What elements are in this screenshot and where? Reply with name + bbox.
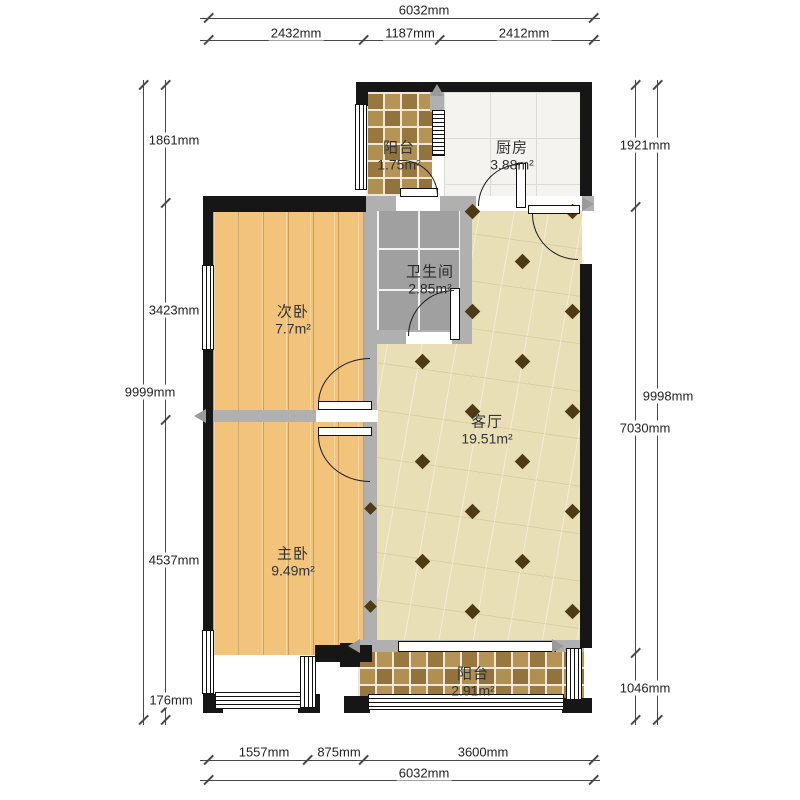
dim-left-seg-1: 1861mm [147, 133, 202, 148]
sliding-door-balcony-bottom [398, 641, 556, 652]
doorway-bedrooms [316, 410, 378, 422]
window-balcony-kitchen-divider [432, 110, 445, 156]
room-name: 客厅 [461, 413, 512, 430]
label-balcony-bottom: 阳台 2.91m² [451, 665, 495, 698]
window-balcony-top-west [355, 104, 367, 190]
dim-left-seg-2: 3423mm [147, 303, 202, 318]
dim-left-seg-4: 176mm [147, 693, 194, 708]
window-balcony-bottom-east [566, 648, 582, 700]
room-area: 7.7m² [275, 321, 311, 337]
dim-right-seg-2: 7030mm [618, 421, 673, 436]
arrow-right-balcony-icon [552, 639, 564, 653]
door-leaf-entrance [528, 205, 580, 214]
window-master-west [202, 630, 214, 694]
dim-right-total: 9998mm [641, 389, 696, 404]
window-bay-east [300, 656, 316, 708]
label-living: 客厅 19.51m² [461, 413, 512, 446]
dim-top-seg-1: 2432mm [269, 26, 324, 41]
dim-line-top-total [200, 18, 600, 19]
arrow-up-icon [430, 84, 444, 96]
window-bay-south [215, 692, 301, 709]
label-kitchen: 厨房 3.88m² [490, 139, 534, 172]
dim-line-right-segments [635, 80, 636, 725]
wall-west-main [203, 350, 213, 632]
dim-top-seg-2: 1187mm [383, 26, 437, 41]
label-balcony-top: 阳台 1.75m² [377, 139, 421, 172]
wall-west-upper [203, 212, 213, 265]
door-leaf-bedroom-master [318, 427, 372, 436]
dim-right-seg-1: 1921mm [618, 138, 673, 153]
dim-left-total: 9999mm [123, 385, 178, 400]
dim-bottom-seg-1: 1557mm [237, 745, 292, 760]
dim-bottom-seg-3: 3600mm [456, 745, 511, 760]
wall-north [356, 82, 592, 92]
label-bedroom-second: 次卧 7.7m² [275, 303, 311, 336]
room-name: 阳台 [377, 139, 421, 156]
wall-balcony-bottom-right-corner [562, 698, 592, 713]
dim-bottom-seg-2: 875mm [315, 745, 362, 760]
window-bedroom-second-west [202, 265, 214, 350]
room-area: 1.75m² [377, 157, 421, 173]
room-area: 2.91m² [451, 683, 495, 699]
room-area: 9.49m² [271, 563, 315, 579]
wall-bedroom-second-north [203, 196, 366, 212]
room-name: 厨房 [490, 139, 534, 156]
arrow-left-icon [194, 409, 206, 423]
dim-line-left-total [143, 80, 144, 725]
wall-bathroom-right [460, 207, 472, 344]
label-bathroom: 卫生间 2.85m² [406, 263, 454, 296]
dim-left-seg-3: 4537mm [147, 553, 202, 568]
dim-top-seg-3: 2412mm [497, 26, 552, 41]
room-name: 主卧 [271, 545, 315, 562]
wall-balcony-bottom-left-corner [344, 696, 370, 713]
room-area: 19.51m² [461, 431, 512, 447]
wall-balcony-top-west [356, 82, 368, 106]
doorway-balcony-top [396, 196, 440, 211]
dim-line-bottom-segments [200, 760, 600, 761]
dim-bottom-total: 6032mm [397, 766, 452, 781]
arrow-right-icon [582, 197, 594, 211]
label-bedroom-master: 主卧 9.49m² [271, 545, 315, 578]
wall-east-main [580, 264, 592, 648]
dim-line-left-segments [165, 80, 166, 725]
floor-plan-canvas: 阳台 1.75m² 厨房 3.88m² 卫生间 2.85m² 次卧 7.7m² … [0, 0, 800, 800]
room-area: 2.85m² [406, 281, 454, 297]
dim-right-seg-3: 1046mm [618, 681, 673, 696]
arrow-left-balcony-icon [348, 639, 360, 653]
room-name: 卫生间 [406, 263, 454, 280]
dim-top-total: 6032mm [397, 3, 452, 18]
room-area: 3.88m² [490, 157, 534, 173]
room-name: 阳台 [451, 665, 495, 682]
wall-kitchen-east [580, 82, 592, 196]
room-name: 次卧 [275, 303, 311, 320]
